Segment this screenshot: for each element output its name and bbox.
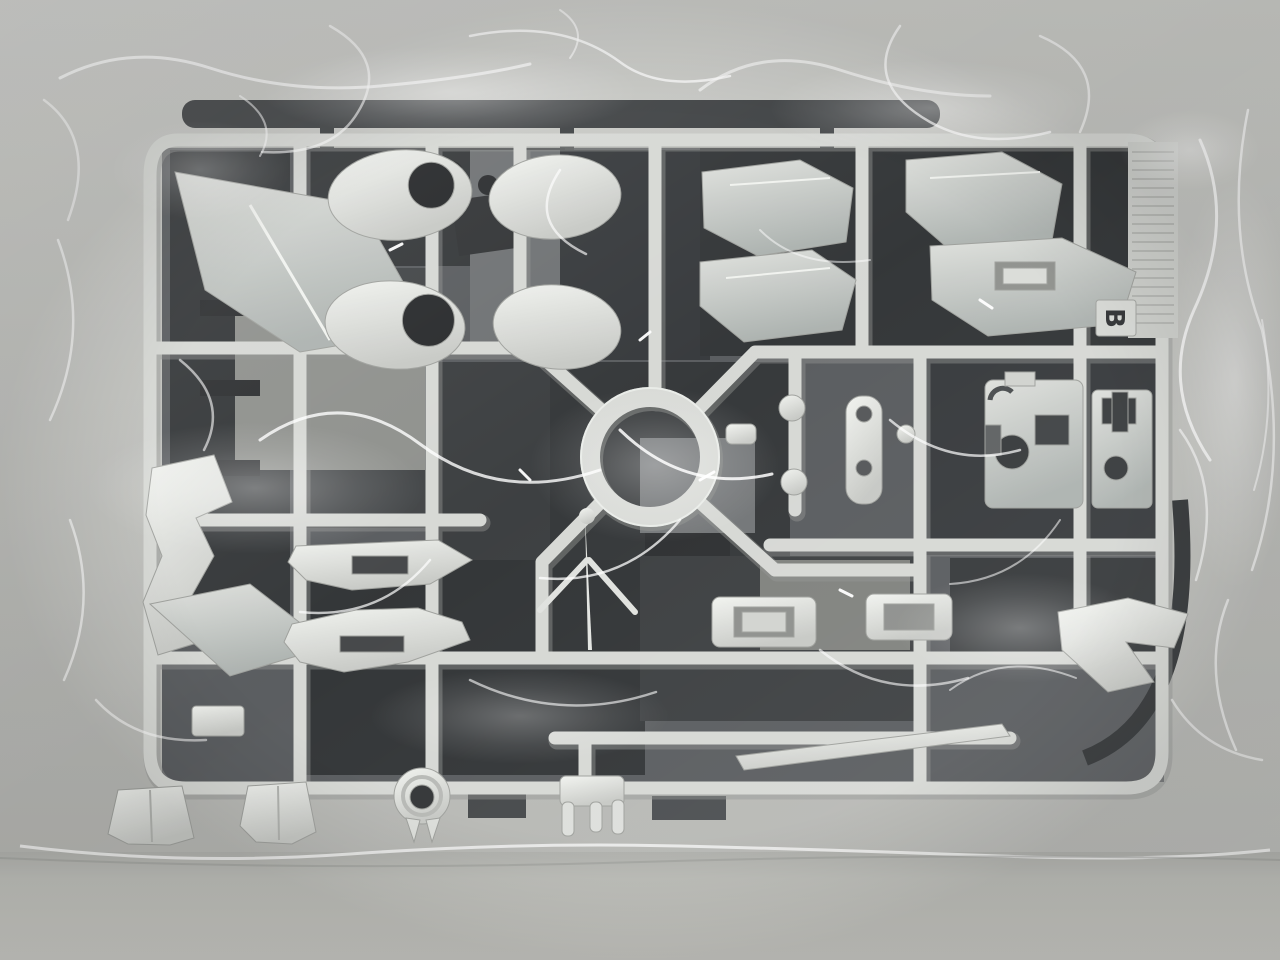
photo-canvas: B bbox=[0, 0, 1280, 960]
vignette bbox=[0, 0, 1280, 960]
photo-model-kit-runner-in-bag: B bbox=[0, 0, 1280, 960]
